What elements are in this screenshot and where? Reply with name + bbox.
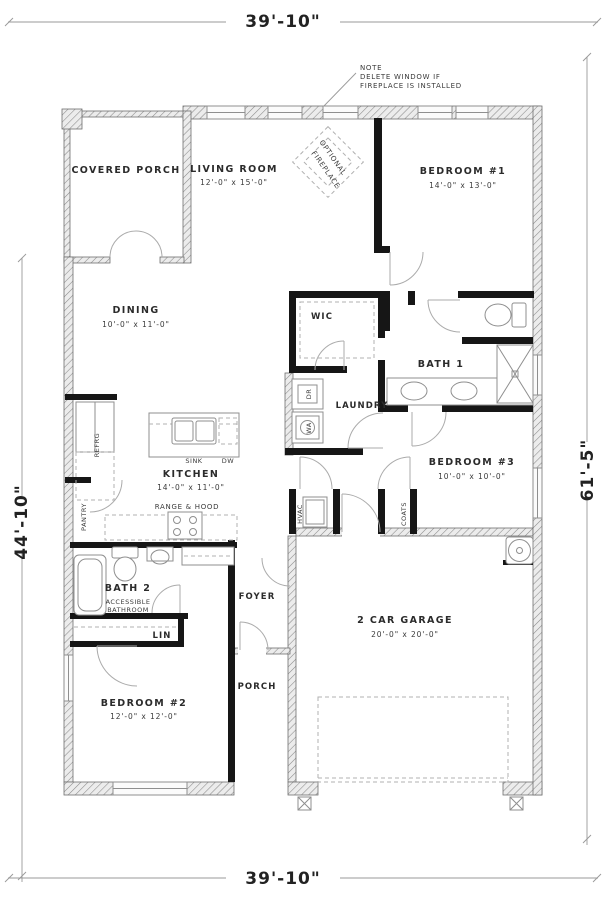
label-wic: WIC (311, 312, 333, 322)
floorplan-page: 39'-10" 39'-10" 44'-10" 61'-5" NOTE DELE… (0, 0, 613, 900)
bath2-sink (147, 547, 173, 564)
note-line3: FIREPLACE IS INSTALLED (360, 82, 462, 90)
label-pantry: PANTRY (80, 503, 88, 531)
label-bedroom-3: BEDROOM #3 (429, 457, 515, 468)
bathtub (74, 555, 106, 615)
note-line1: NOTE (360, 64, 382, 72)
label-range-hood: RANGE & HOOD (155, 503, 219, 511)
label-coats: COATS (400, 502, 408, 526)
label-dishwasher: DW (222, 457, 235, 465)
water-heater (506, 537, 533, 564)
label-covered-porch: COVERED PORCH (71, 165, 180, 176)
range (105, 512, 237, 540)
column-marker (298, 797, 311, 810)
dims-dining: 10'-0" x 11'-0" (102, 320, 170, 329)
dimension-bottom: 39'-10" (245, 869, 320, 889)
column-marker (510, 797, 523, 810)
label-garage: 2 CAR GARAGE (357, 615, 453, 626)
window (323, 106, 358, 119)
label-bathroom: BATHROOM (107, 606, 149, 614)
dimension-left: 44'-10" (12, 484, 32, 559)
window (533, 355, 542, 395)
label-lin: LIN (153, 631, 172, 641)
dims-kitchen: 14'-0" x 11'-0" (157, 483, 225, 492)
garage-entry-opening (342, 527, 380, 537)
label-dining: DINING (112, 305, 159, 316)
window (533, 468, 542, 518)
shower (497, 345, 533, 403)
window (64, 655, 73, 701)
note-line2: DELETE WINDOW IF (360, 73, 441, 81)
window (456, 106, 488, 119)
label-hvac: HVAC (296, 504, 304, 524)
label-bedroom-1: BEDROOM #1 (420, 166, 506, 177)
label-refrigerator: REFRG (93, 433, 101, 457)
label-porch: PORCH (238, 682, 277, 692)
garage-door (318, 697, 508, 782)
label-bath-1: BATH 1 (418, 359, 465, 370)
label-accessible: ACCESSIBLE (106, 598, 151, 606)
bath1-toilet (485, 303, 526, 327)
label-living-room: LIVING ROOM (190, 164, 278, 175)
fireplace (293, 127, 364, 198)
kitchen-island (149, 413, 239, 457)
label-dryer: DR (305, 389, 313, 400)
bath2-toilet (112, 547, 138, 581)
window (418, 106, 452, 119)
wic-shelves (300, 302, 374, 358)
hvac-unit (303, 497, 327, 527)
floorplan-drawing: 39'-10" 39'-10" 44'-10" 61'-5" NOTE DELE… (0, 0, 613, 900)
dimension-right: 61'-5" (578, 439, 598, 502)
dims-bedroom-2: 12'-0" x 12'-0" (110, 712, 178, 721)
label-sink: SINK (185, 457, 202, 465)
dims-living-room: 12'-0" x 15'-0" (200, 178, 268, 187)
window (268, 106, 302, 119)
foyer-closet (182, 547, 234, 565)
interior-walls (65, 118, 534, 782)
window (113, 782, 187, 795)
dims-garage: 20'-0" x 20'-0" (371, 630, 439, 639)
label-washer: WA (305, 422, 313, 434)
dims-bedroom-1: 14'-0" x 13'-0" (429, 181, 497, 190)
front-door-opening (238, 647, 266, 655)
label-laundry: LAUNDRY (336, 401, 389, 411)
dimension-top: 39'-10" (245, 12, 320, 32)
dims-bedroom-3: 10'-0" x 10'-0" (438, 472, 506, 481)
window (207, 106, 245, 119)
label-kitchen: KITCHEN (163, 469, 220, 480)
label-bedroom-2: BEDROOM #2 (101, 698, 187, 709)
label-foyer: FOYER (239, 592, 276, 602)
label-bath-2: BATH 2 (105, 583, 152, 594)
